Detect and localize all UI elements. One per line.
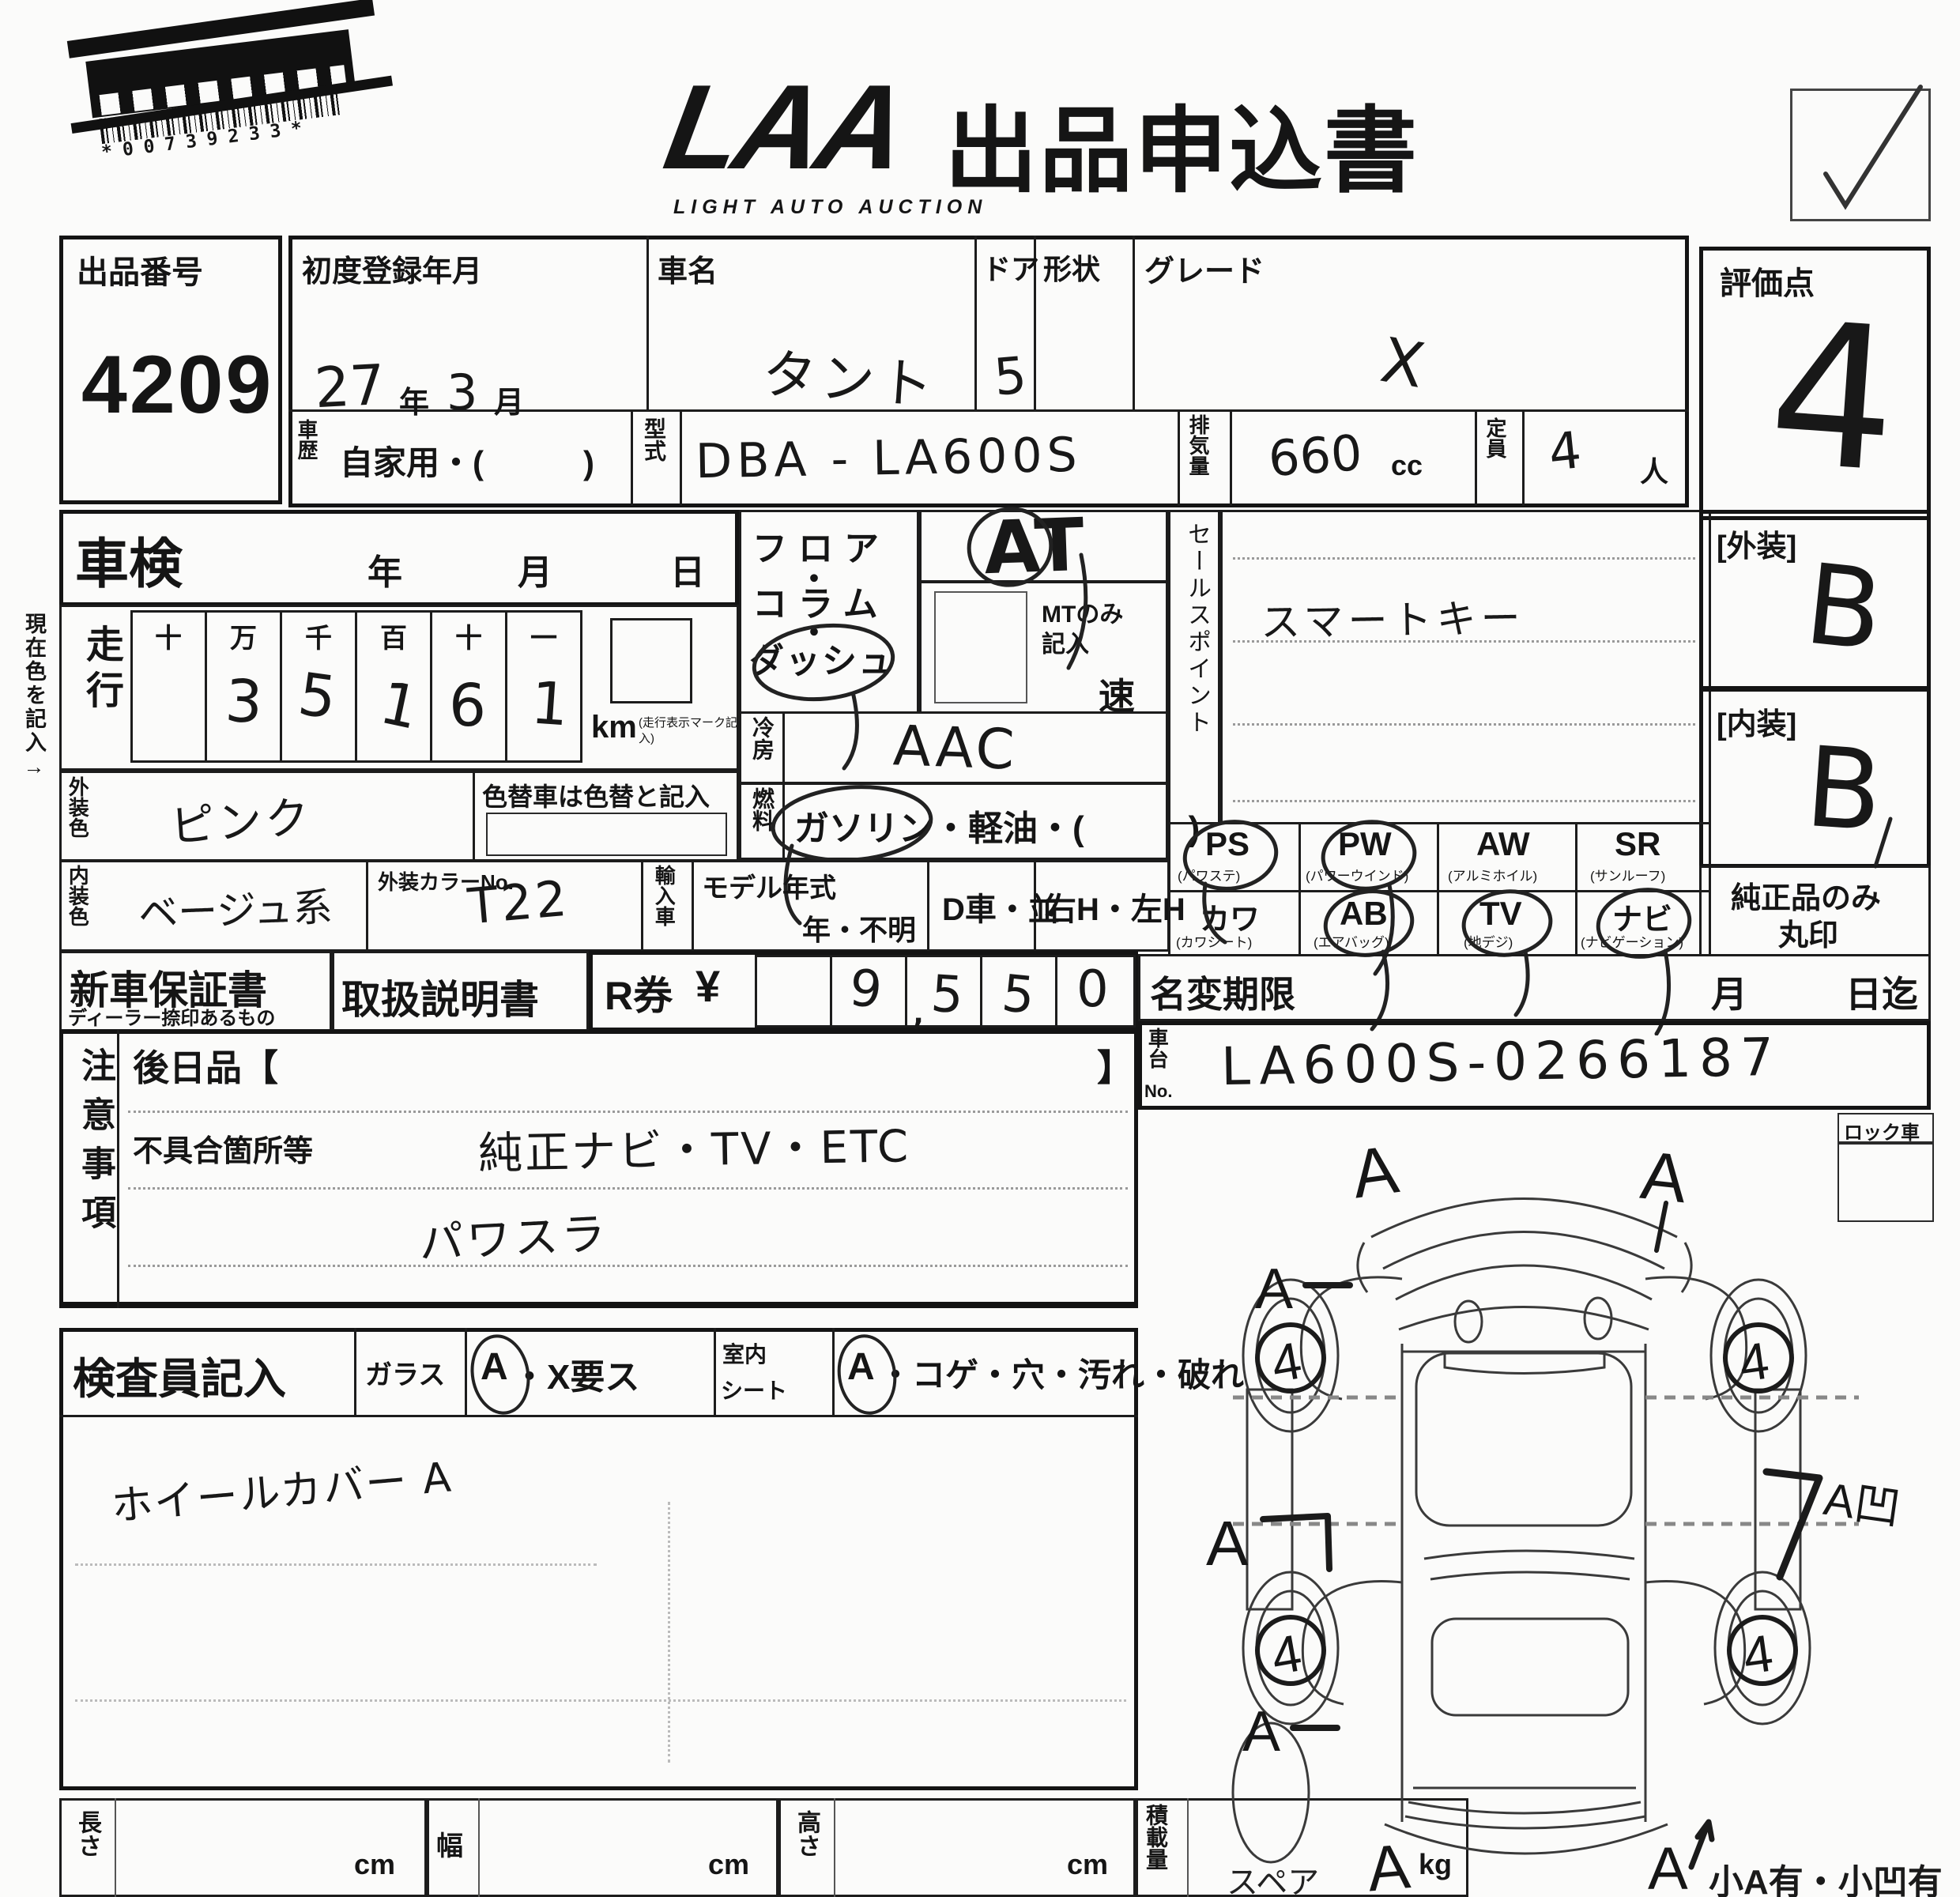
capacity-value: 4	[1546, 421, 1584, 483]
mileage-col-100: 百	[380, 617, 407, 655]
chassis-label-no: No.	[1144, 1081, 1172, 1102]
notes-label: 注意事項	[70, 1047, 120, 1243]
ext-grade-label: [外装]	[1717, 522, 1796, 565]
grade-label: グレード	[1144, 247, 1265, 290]
dim-height-label: 高さ	[789, 1810, 824, 1857]
notes-later-close: 】	[1097, 1039, 1133, 1092]
chassis-label: 車台	[1146, 1028, 1167, 1069]
rticket-digit-2: 5	[929, 965, 965, 1026]
spare-label: スペア	[1227, 1865, 1319, 1897]
int-color-value: ベージュ系	[138, 876, 334, 940]
name-change-label: 名変期限	[1150, 966, 1295, 1018]
model-year-label: モデル年式	[702, 866, 836, 905]
auction-sheet: *00739233* LAA LIGHT AUTO AUCTION 出品申込書 …	[0, 0, 1960, 1897]
dim-length-unit: cm	[354, 1848, 395, 1881]
first-reg-label: 初度登録年月	[302, 247, 482, 290]
mark-fender-fl-a: A	[1255, 1258, 1293, 1321]
color-change-note: 色替車は色替と記入	[482, 777, 710, 813]
shape-label: 形状	[1043, 247, 1100, 288]
page-title: 出品申込書	[944, 75, 1419, 210]
manual-label: 取扱説明書	[341, 968, 539, 1025]
mileage-digit-10k: 3	[224, 667, 265, 737]
door-value: 5	[992, 346, 1029, 407]
mileage-unit: km	[591, 710, 637, 745]
name-change-until: 日迄	[1845, 966, 1918, 1018]
diagram-bottom-note: 小A有・小凹有	[1709, 1863, 1943, 1897]
sales-point-value: スマートキー	[1260, 586, 1525, 648]
displacement-unit: cc	[1391, 449, 1423, 482]
mileage-col-100k: 十	[155, 617, 182, 655]
car-diagram: スペア 小A有・小凹有 A A A A A A A A凹 4 4 4 4	[1138, 1107, 1960, 1897]
mark-note-arrow-a: A	[1648, 1835, 1688, 1897]
notes-later-label: 後日品【	[133, 1039, 278, 1092]
rticket-yen: ¥	[695, 960, 720, 1012]
laa-logo: LAA	[658, 67, 911, 187]
mileage-digit-10: 6	[449, 672, 486, 740]
warranty-sub: ディーラー捺印あるもの	[68, 1002, 275, 1030]
first-reg-month-suffix: 月	[494, 378, 524, 421]
capacity-unit: 人	[1640, 449, 1668, 490]
rticket-comma: ,	[910, 980, 925, 1035]
mileage-col-1: 一	[530, 617, 557, 655]
shaken-day: 日	[670, 544, 705, 594]
mark-fender-rl-a: A	[1242, 1700, 1280, 1763]
dim-width-label: 幅	[436, 1824, 463, 1863]
score-value: 4	[1763, 295, 1902, 500]
import-label: 輸入車	[653, 865, 674, 926]
rticket-label: R券	[605, 964, 673, 1021]
mileage-col-10k: 万	[230, 617, 257, 655]
inspector-glass-label: ガラス	[365, 1353, 445, 1392]
int-grade-label: [内装]	[1717, 700, 1796, 743]
rticket-digit-1: 9	[846, 959, 884, 1020]
mileage-label: 走行	[73, 624, 128, 716]
door-label: ドア	[982, 247, 1039, 288]
model-code-label: 型式	[638, 417, 669, 462]
ext-color-value: ピンク	[168, 782, 314, 855]
displacement-value: 660	[1267, 424, 1364, 488]
history-label: 車歴	[292, 419, 322, 460]
current-color-side-note: 現在色を記入→	[19, 613, 50, 850]
model-code-value: DBA - LA600S	[695, 428, 1082, 490]
mileage-digit-1: 1	[529, 669, 571, 739]
barcode-sticker: *00739233*	[60, 0, 398, 172]
color-change-box	[486, 813, 727, 856]
mark-rear-bumper-a: A	[1364, 1831, 1413, 1897]
first-reg-year-value: 27	[313, 353, 386, 421]
auction-no-value: 4209	[81, 338, 273, 432]
dim-height-unit: cm	[1067, 1848, 1108, 1881]
mark-front-left-a: A	[1347, 1131, 1404, 1212]
first-reg-year-suffix: 年	[399, 378, 429, 421]
checkmark-icon	[1790, 55, 1948, 229]
ext-color-label: 外装色	[66, 776, 88, 838]
shaken-year: 年	[367, 544, 402, 594]
mileage-stamp-box	[610, 618, 692, 703]
car-name-value: タント	[760, 330, 940, 420]
displacement-label: 排気量	[1184, 414, 1213, 476]
name-change-month: 月	[1711, 966, 1747, 1018]
history-value: 自家用・( )	[340, 436, 594, 485]
notes-hw-line2: パワスラ	[417, 1198, 610, 1272]
laa-logo-subtitle: LIGHT AUTO AUCTION	[673, 196, 987, 219]
notes-hw-line1: 純正ナビ・TV・ETC	[477, 1111, 910, 1182]
auction-no-label: 出品番号	[77, 247, 203, 292]
mark-side-right-dent: A凹	[1821, 1473, 1904, 1535]
notes-defect-label: 不具合箇所等	[133, 1126, 313, 1170]
inspector-seat-label-2: シート	[721, 1374, 787, 1405]
mileage-col-1k: 千	[305, 617, 332, 655]
ext-grade-value: B	[1800, 540, 1889, 676]
mileage-col-10: 十	[455, 617, 482, 655]
rticket-digit-3: 5	[999, 964, 1037, 1026]
genuine-note-2: 丸印	[1778, 911, 1838, 954]
d-car-value: D車・並	[942, 884, 1060, 930]
inspector-seat-label-1: 室内	[722, 1337, 767, 1369]
shaken-label: 車検	[75, 520, 183, 598]
inspector-glass-rest: ・X要ス	[512, 1348, 639, 1399]
color-no-value: T22	[465, 869, 572, 936]
model-year-value: 年・不明	[802, 907, 916, 948]
first-reg-month-value: 3	[447, 364, 477, 421]
rticket-digit-4: 0	[1076, 960, 1109, 1019]
mileage-unit-note: (走行表示マーク記入)	[639, 715, 737, 746]
int-color-label: 内装色	[66, 865, 88, 926]
sales-point-label: セールスポイント	[1179, 522, 1214, 822]
chassis-value: LA600S-0266187	[1220, 1027, 1781, 1097]
dim-width-unit: cm	[708, 1848, 749, 1881]
dim-length-label: 長さ	[70, 1810, 104, 1857]
mark-rocker-left-a: A	[1206, 1508, 1249, 1578]
capacity-label: 定員	[1481, 417, 1510, 458]
shaken-month: 月	[518, 544, 552, 594]
car-name-label: 車名	[658, 247, 718, 290]
inspector-label: 検査員記入	[73, 1344, 286, 1406]
